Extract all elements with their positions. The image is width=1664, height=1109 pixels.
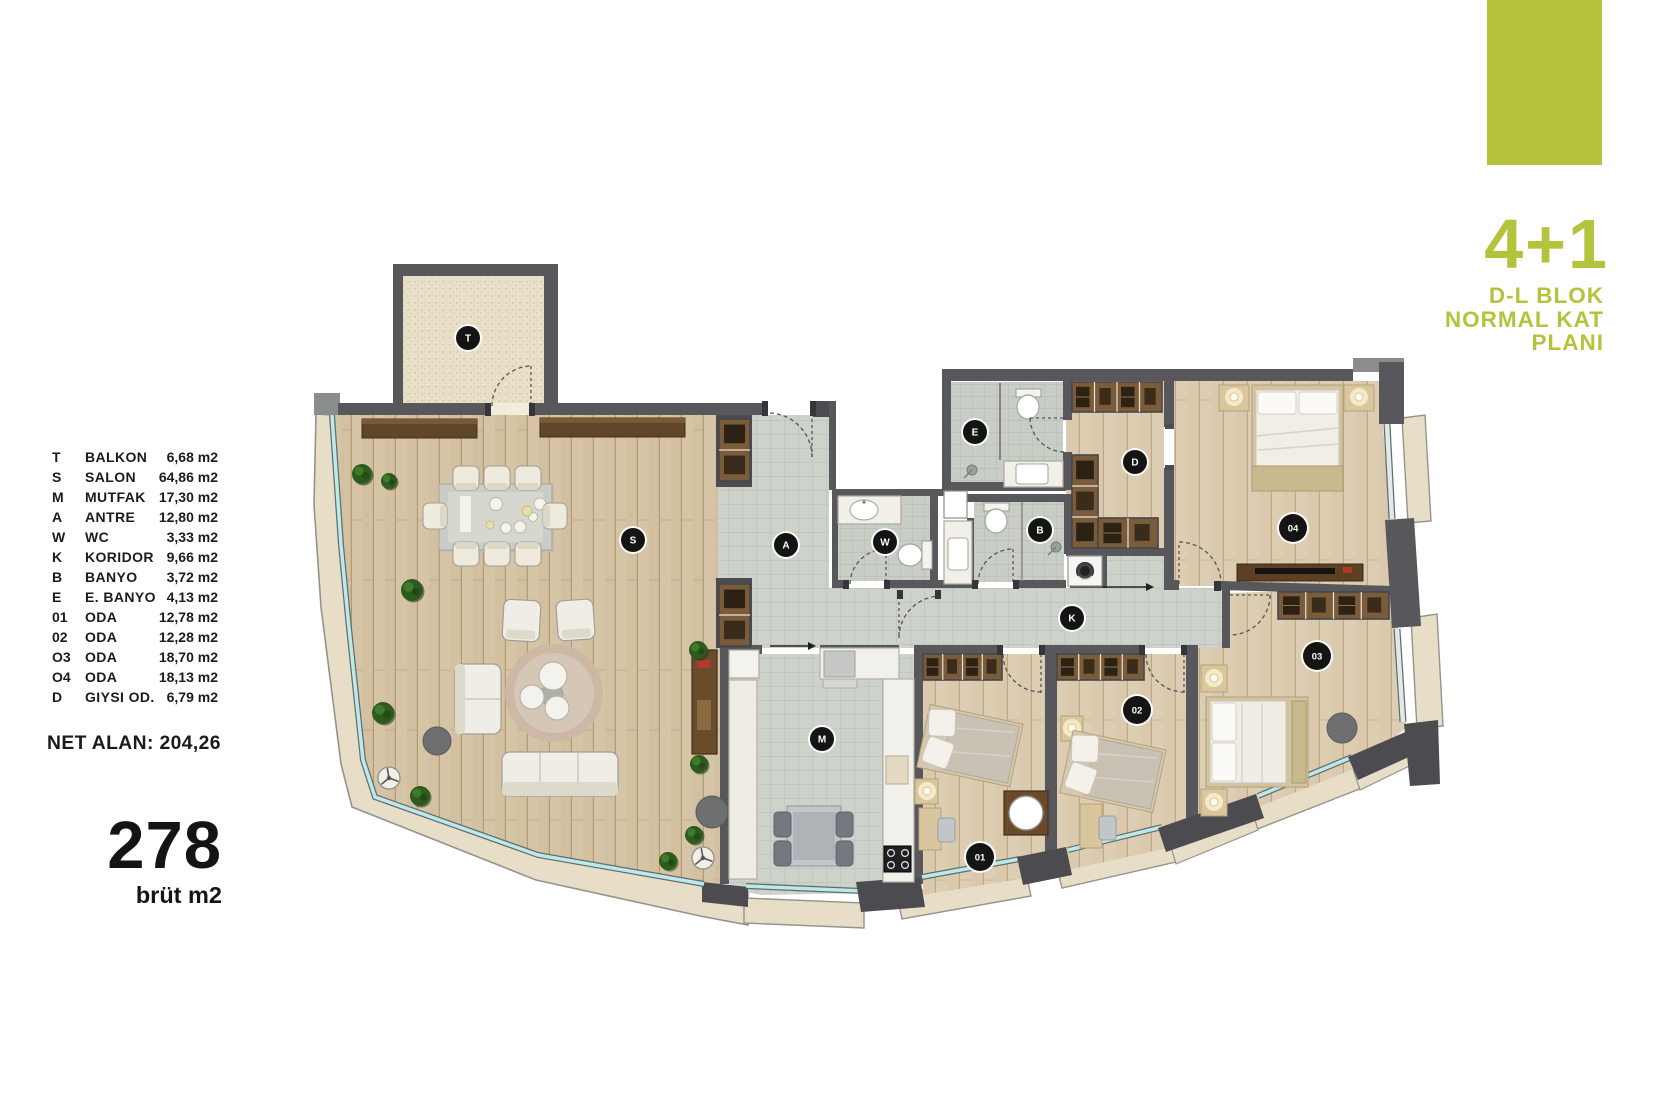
svg-text:O3: O3 — [52, 649, 71, 665]
svg-text:E: E — [972, 428, 979, 439]
svg-text:S: S — [52, 469, 61, 485]
svg-text:MUTFAK: MUTFAK — [85, 489, 146, 505]
svg-text:18,70 m2: 18,70 m2 — [159, 649, 218, 665]
svg-text:ODA: ODA — [85, 669, 117, 685]
svg-text:B: B — [52, 569, 62, 585]
svg-text:04: 04 — [1288, 523, 1299, 534]
svg-text:E. BANYO: E. BANYO — [85, 589, 156, 605]
svg-text:D: D — [52, 689, 62, 705]
svg-text:3,72 m2: 3,72 m2 — [167, 569, 219, 585]
svg-text:BALKON: BALKON — [85, 449, 147, 465]
svg-text:T: T — [465, 334, 471, 345]
svg-text:03: 03 — [1312, 651, 1323, 662]
svg-text:A: A — [782, 541, 789, 552]
svg-text:E: E — [52, 589, 61, 605]
svg-text:WC: WC — [85, 529, 109, 545]
svg-text:02: 02 — [1132, 705, 1143, 716]
svg-text:12,78 m2: 12,78 m2 — [159, 609, 218, 625]
svg-text:BANYO: BANYO — [85, 569, 138, 585]
svg-text:D: D — [1131, 458, 1138, 469]
svg-text:PLANI: PLANI — [1532, 330, 1605, 355]
svg-text:12,80 m2: 12,80 m2 — [159, 509, 218, 525]
svg-text:M: M — [52, 489, 64, 505]
svg-text:ANTRE: ANTRE — [85, 509, 135, 525]
svg-text:M: M — [818, 735, 826, 746]
svg-text:W: W — [52, 529, 66, 545]
svg-text:A: A — [52, 509, 62, 525]
svg-text:3,33 m2: 3,33 m2 — [167, 529, 219, 545]
svg-text:W: W — [880, 538, 890, 549]
svg-text:O4: O4 — [52, 669, 71, 685]
svg-text:NET ALAN: 204,26: NET ALAN: 204,26 — [47, 733, 221, 754]
svg-text:9,66 m2: 9,66 m2 — [167, 549, 219, 565]
svg-text:NORMAL KAT: NORMAL KAT — [1445, 307, 1604, 332]
svg-text:02: 02 — [52, 629, 68, 645]
svg-text:ODA: ODA — [85, 629, 117, 645]
svg-text:ODA: ODA — [85, 649, 117, 665]
svg-text:17,30 m2: 17,30 m2 — [159, 489, 218, 505]
svg-text:6,79 m2: 6,79 m2 — [167, 689, 219, 705]
svg-text:brüt m2: brüt m2 — [136, 882, 222, 908]
svg-text:64,86 m2: 64,86 m2 — [159, 469, 218, 485]
svg-text:4+1: 4+1 — [1484, 205, 1609, 283]
svg-text:SALON: SALON — [85, 469, 136, 485]
svg-text:GIYSI OD.: GIYSI OD. — [85, 689, 155, 705]
svg-text:K: K — [1068, 614, 1076, 625]
svg-text:12,28 m2: 12,28 m2 — [159, 629, 218, 645]
svg-text:KORIDOR: KORIDOR — [85, 549, 154, 565]
svg-text:4,13 m2: 4,13 m2 — [167, 589, 219, 605]
svg-text:278: 278 — [107, 808, 222, 883]
svg-text:6,68 m2: 6,68 m2 — [167, 449, 219, 465]
svg-text:01: 01 — [975, 852, 986, 863]
svg-text:18,13 m2: 18,13 m2 — [159, 669, 218, 685]
svg-text:T: T — [52, 449, 61, 465]
svg-text:D-L BLOK: D-L BLOK — [1489, 283, 1604, 308]
svg-text:K: K — [52, 549, 62, 565]
svg-text:ODA: ODA — [85, 609, 117, 625]
svg-text:B: B — [1036, 526, 1043, 537]
svg-text:S: S — [630, 536, 637, 547]
svg-text:01: 01 — [52, 609, 68, 625]
